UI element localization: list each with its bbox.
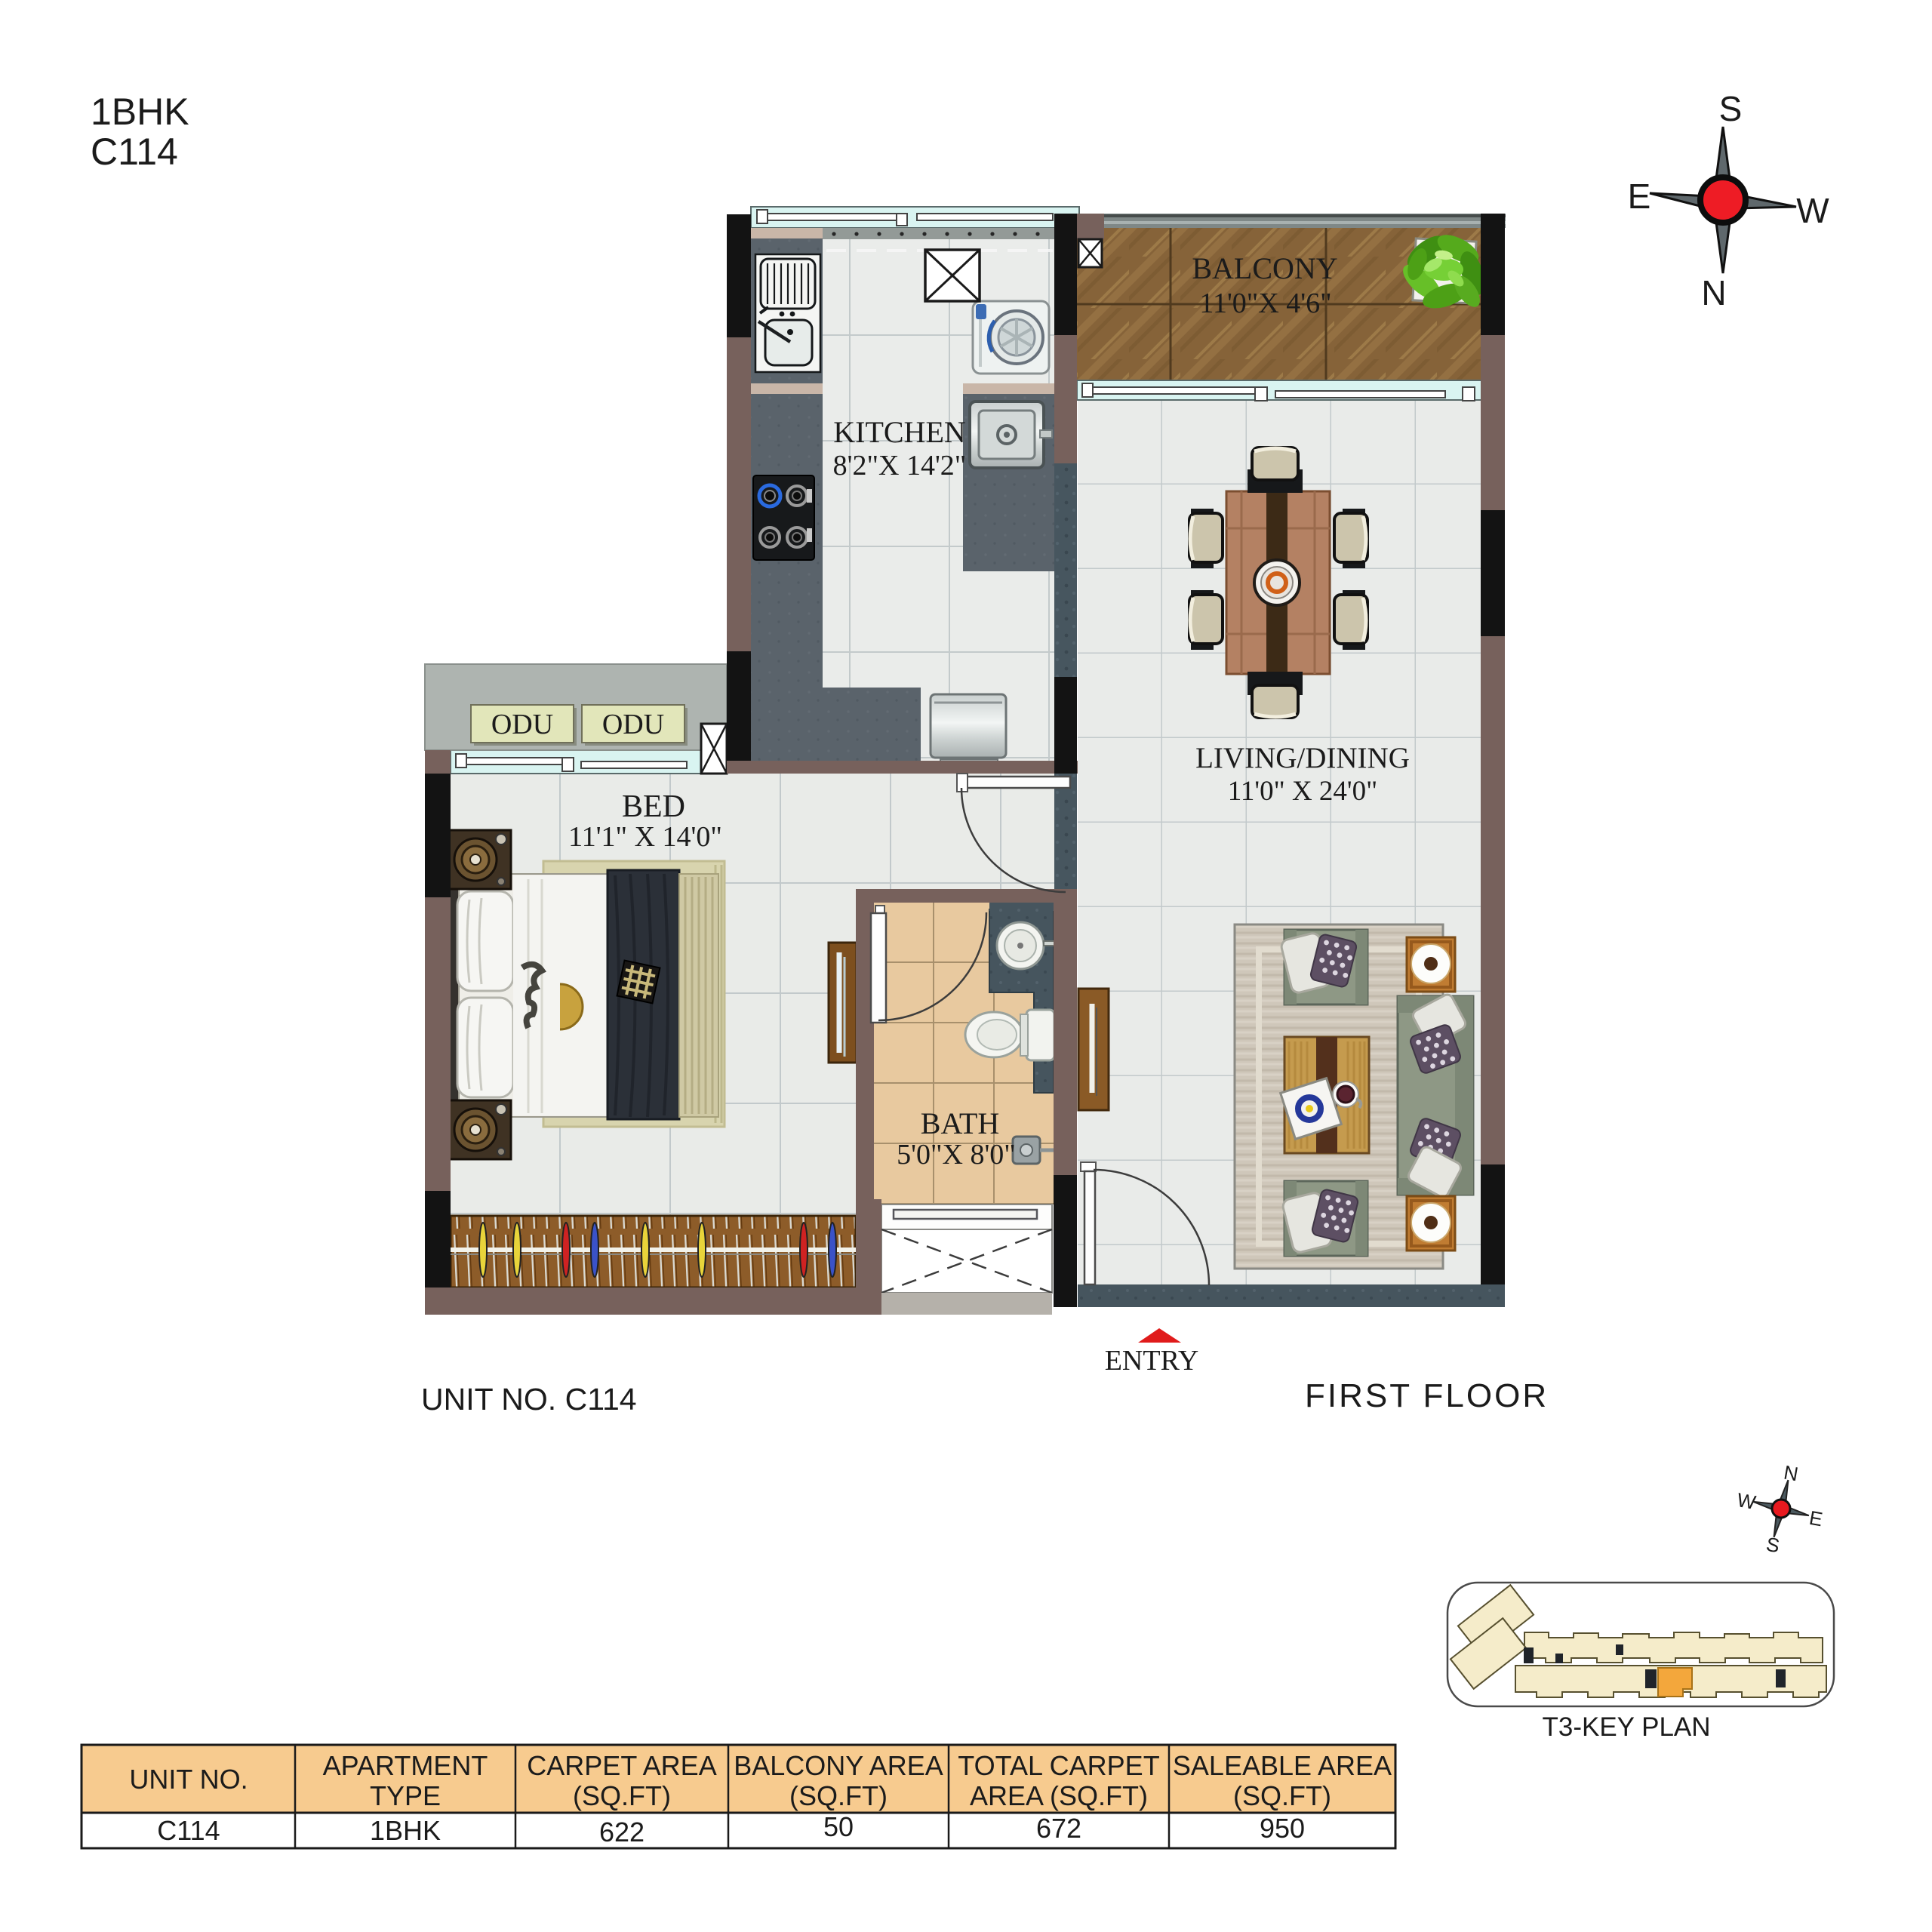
svg-text:LIVING/DINING: LIVING/DINING	[1195, 742, 1410, 774]
svg-text:C114: C114	[157, 1815, 220, 1846]
svg-text:(SQ.FT): (SQ.FT)	[573, 1780, 671, 1811]
svg-text:BALCONY: BALCONY	[1192, 251, 1337, 285]
svg-text:E: E	[1628, 177, 1651, 216]
svg-text:11'0" X 24'0": 11'0" X 24'0"	[1228, 776, 1377, 807]
svg-text:KITCHEN: KITCHEN	[833, 415, 966, 449]
svg-text:UNIT NO. C114: UNIT NO. C114	[421, 1382, 637, 1417]
svg-text:TYPE: TYPE	[370, 1780, 441, 1811]
svg-text:11'1" X 14'0": 11'1" X 14'0"	[568, 821, 722, 853]
svg-text:11'0"X 4'6": 11'0"X 4'6"	[1199, 288, 1331, 319]
svg-text:BATH: BATH	[921, 1106, 999, 1140]
svg-text:UNIT NO.: UNIT NO.	[129, 1764, 248, 1795]
svg-text:S: S	[1719, 89, 1743, 128]
svg-text:1BHK: 1BHK	[370, 1815, 441, 1846]
svg-text:C114: C114	[91, 131, 178, 173]
svg-text:ODU: ODU	[491, 709, 553, 740]
svg-text:1BHK: 1BHK	[91, 91, 189, 133]
svg-text:BED: BED	[622, 789, 685, 824]
svg-text:N: N	[1701, 273, 1726, 312]
svg-text:950: 950	[1260, 1813, 1305, 1844]
svg-text:T3-KEY PLAN: T3-KEY PLAN	[1542, 1712, 1710, 1742]
svg-text:672: 672	[1036, 1813, 1081, 1844]
svg-text:622: 622	[599, 1817, 645, 1847]
svg-text:FIRST FLOOR: FIRST FLOOR	[1305, 1377, 1549, 1414]
svg-text:APARTMENT: APARTMENT	[323, 1750, 488, 1781]
svg-text:CARPET AREA: CARPET AREA	[527, 1750, 716, 1781]
svg-text:AREA (SQ.FT): AREA (SQ.FT)	[970, 1780, 1148, 1811]
svg-text:(SQ.FT): (SQ.FT)	[1233, 1780, 1331, 1811]
svg-text:ODU: ODU	[602, 709, 664, 740]
svg-text:BALCONY AREA: BALCONY AREA	[734, 1750, 943, 1781]
svg-text:8'2"X 14'2": 8'2"X 14'2"	[833, 450, 967, 481]
svg-text:W: W	[1796, 191, 1829, 230]
svg-text:50: 50	[823, 1811, 854, 1842]
svg-text:5'0"X 8'0": 5'0"X 8'0"	[897, 1139, 1016, 1171]
svg-text:ENTRY: ENTRY	[1105, 1345, 1199, 1377]
svg-text:TOTAL CARPET: TOTAL CARPET	[958, 1750, 1159, 1781]
svg-text:(SQ.FT): (SQ.FT)	[789, 1780, 888, 1811]
svg-text:SALEABLE AREA: SALEABLE AREA	[1173, 1750, 1392, 1781]
